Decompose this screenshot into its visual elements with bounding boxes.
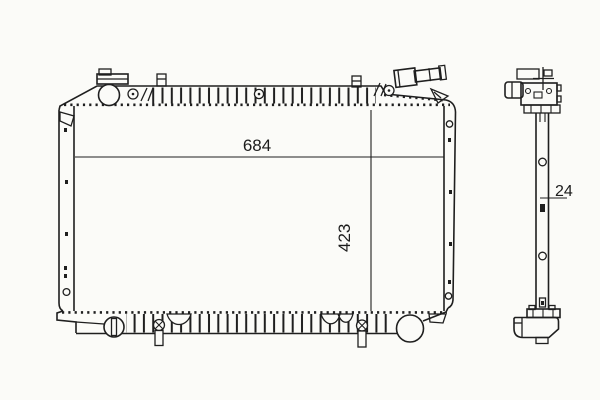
drain-plug — [104, 317, 124, 337]
front-height-dimension-label: 423 — [335, 224, 354, 252]
filler-neck — [97, 69, 138, 106]
filler-opening — [99, 85, 120, 106]
bottom-tank — [57, 308, 448, 347]
front-width-dimension-label: 684 — [243, 136, 271, 155]
mounting-pin-right — [357, 320, 368, 347]
side-view-body — [536, 113, 549, 309]
radiator-front-view: 684 423 — [57, 64, 456, 347]
radiator-technical-drawing: 684 423 — [0, 0, 600, 400]
right-side-member — [444, 106, 456, 311]
left-side-member — [59, 106, 74, 311]
outlet-port — [397, 315, 424, 342]
inlet-pipe — [394, 64, 447, 87]
side-depth-dimension-label: 24 — [555, 183, 573, 200]
side-depth-dimension: 24 — [540, 183, 573, 200]
bottom-tank-fins — [126, 314, 393, 333]
side-view-head — [505, 67, 561, 113]
side-view-foot — [514, 306, 560, 344]
top-studs — [157, 74, 361, 87]
mounting-pin-left — [154, 320, 165, 346]
radiator-side-view: 24 — [505, 67, 573, 344]
left-top-tab — [60, 112, 74, 126]
side-outlet-elbow — [514, 318, 559, 338]
corner-bracket — [431, 89, 448, 103]
dimension-annotations: 684 423 — [75, 110, 444, 311]
